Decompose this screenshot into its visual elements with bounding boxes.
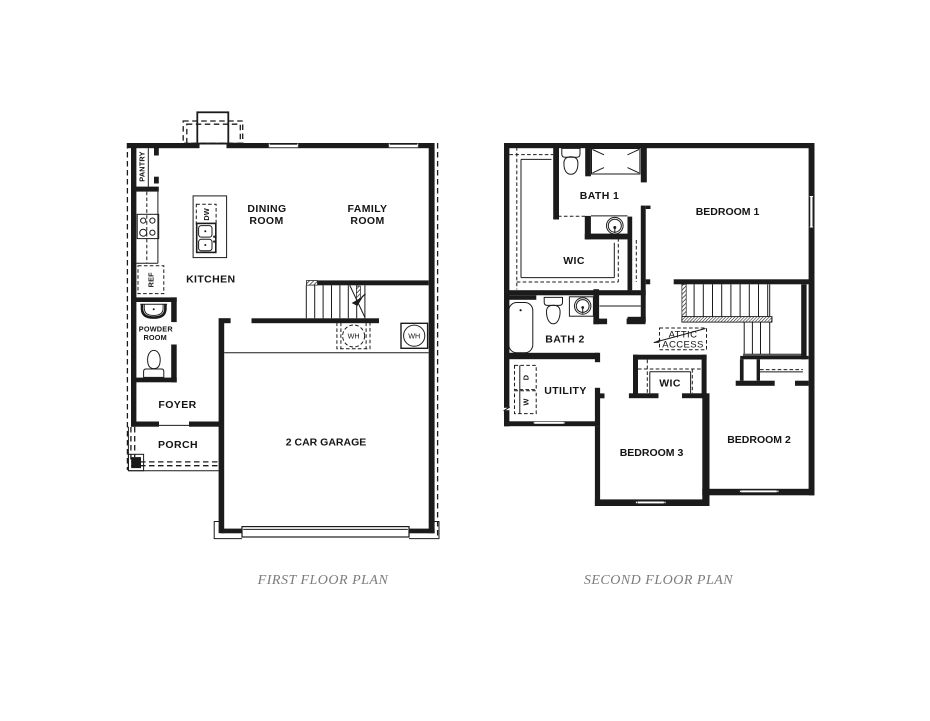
svg-text:PANTRY: PANTRY [138,151,147,181]
svg-text:W: W [522,398,531,405]
svg-text:BATH 1: BATH 1 [580,190,620,202]
svg-text:ROOM: ROOM [350,215,384,227]
svg-text:2 CAR GARAGE: 2 CAR GARAGE [286,437,367,449]
svg-text:REF: REF [146,272,155,288]
svg-text:WIC: WIC [563,255,585,267]
svg-text:DW: DW [202,208,211,221]
svg-text:BEDROOM 2: BEDROOM 2 [727,434,791,446]
svg-text:WH: WH [348,332,360,341]
svg-text:WIC: WIC [659,378,681,390]
svg-text:BATH 2: BATH 2 [545,333,585,345]
svg-text:ROOM: ROOM [143,333,167,342]
svg-text:SECOND FLOOR PLAN: SECOND FLOOR PLAN [584,573,733,588]
svg-text:PORCH: PORCH [158,439,198,451]
svg-text:BEDROOM 3: BEDROOM 3 [620,447,684,459]
svg-text:ACCESS: ACCESS [662,339,703,350]
svg-text:UTILITY: UTILITY [544,385,586,397]
svg-text:DINING: DINING [247,203,286,215]
svg-text:FOYER: FOYER [158,399,196,411]
svg-text:BEDROOM 1: BEDROOM 1 [696,206,760,218]
svg-text:FIRST FLOOR PLAN: FIRST FLOOR PLAN [257,573,389,588]
svg-text:D: D [522,375,531,380]
svg-text:FAMILY: FAMILY [348,203,388,215]
svg-text:KITCHEN: KITCHEN [186,273,235,285]
svg-text:ROOM: ROOM [249,215,283,227]
svg-text:WH: WH [408,331,420,340]
